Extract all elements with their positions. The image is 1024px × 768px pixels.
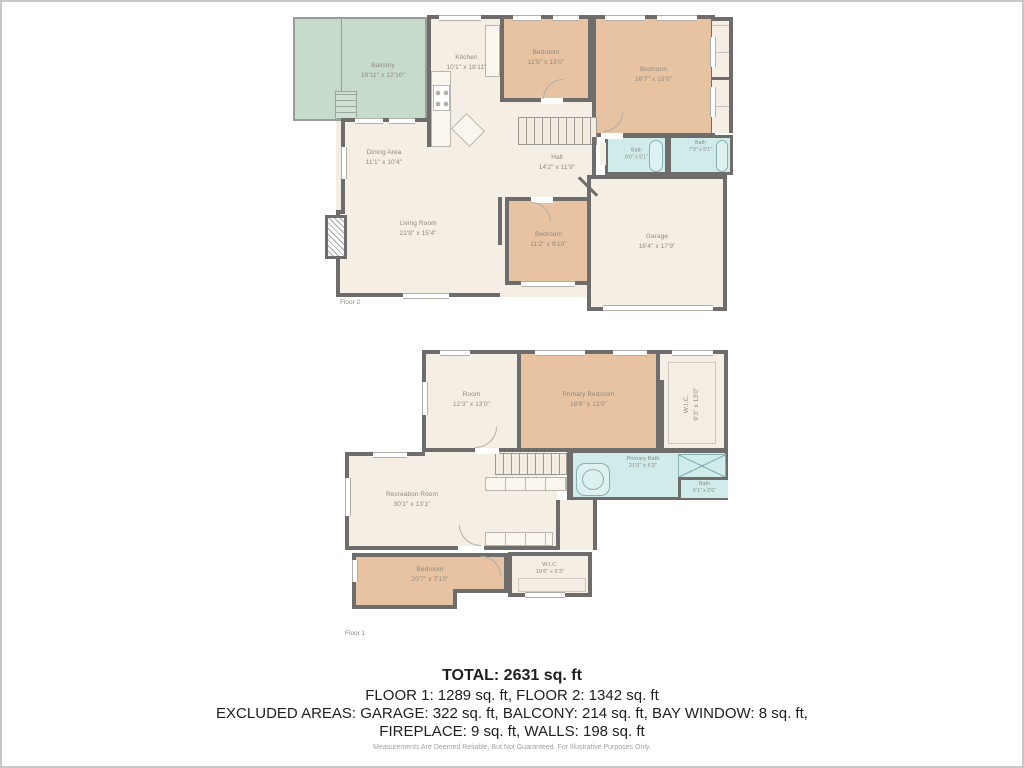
stove-icon — [433, 85, 450, 111]
room-name: Primary Bath — [583, 456, 703, 463]
room-room: Room 12'3" x 13'0" — [422, 350, 517, 452]
room-dims: 10'1" x 18'11" — [431, 63, 502, 73]
room-name: Bath — [671, 140, 730, 147]
room-wic-lower: W.I.C. 10'6" x 6'3" — [508, 552, 592, 597]
room-dims: 5'1" x 2'6" — [681, 488, 728, 495]
room-dims: 21'9" x 15'4" — [336, 229, 500, 239]
room-name: Living Room — [336, 219, 500, 229]
room-label: Bedroom 11'5" x 13'0" — [504, 47, 588, 67]
room-dims: 16'11" x 12'10" — [341, 71, 425, 81]
cabinet-row — [485, 477, 567, 491]
closet-opening — [710, 37, 716, 67]
window — [439, 15, 481, 21]
wall-segment — [593, 500, 597, 550]
room-name: Room — [426, 390, 517, 400]
excluded-areas-text: EXCLUDED AREAS: GARAGE: 322 sq. ft, BALC… — [0, 705, 1024, 722]
room-name: Primary Bedroom — [521, 390, 656, 400]
window — [355, 118, 383, 124]
floor-label: Floor 1 — [345, 630, 365, 637]
room-name: Balcony — [341, 61, 425, 71]
window — [389, 118, 415, 124]
room-label: W.I.C. 10'6" x 6'3" — [512, 562, 588, 577]
closet-shelves — [518, 578, 586, 592]
room-label: Primary Bath 21'0" x 6'2" — [583, 456, 703, 471]
window — [525, 592, 565, 598]
room-bedroom-lower-ext — [352, 593, 457, 609]
window — [373, 452, 407, 458]
room-bath-small: Bath 5'1" x 2'6" — [678, 477, 728, 498]
balcony-stairs — [335, 91, 357, 119]
floor-label: Floor 2 — [340, 299, 360, 306]
room-dims: 10'6" x 6'3" — [512, 569, 588, 576]
room-label: Balcony 16'11" x 12'10" — [341, 61, 425, 81]
room-balcony: Balcony 16'11" x 12'10" — [293, 17, 427, 121]
room-dims: 14'2" x 11'9" — [512, 163, 602, 173]
room-label: Recreation Room 30'1" x 13'1" — [345, 490, 479, 510]
window — [657, 15, 697, 21]
room-name: Bath — [608, 148, 665, 155]
room-bath-b: Bath 7'9" x 5'1" — [668, 135, 733, 175]
window — [672, 350, 713, 356]
room-name: W.I.C. — [682, 372, 692, 436]
room-label: Dining Area 11'1" x 10'4" — [341, 148, 427, 168]
room-label: Living Room 21'9" x 15'4" — [336, 219, 500, 239]
floor-areas-text: FLOOR 1: 1289 sq. ft, FLOOR 2: 1342 sq. … — [0, 687, 1024, 704]
garage-door — [603, 305, 713, 311]
room-label: W.I.C. 9'3" x 13'0" — [682, 372, 702, 436]
room-name: Kitchen — [431, 53, 502, 63]
floor-2-plan: Balcony 16'11" x 12'10" Kitchen 10'1" x … — [291, 15, 733, 315]
room-label: Bath 8'0" x 5'1" — [608, 148, 665, 162]
room-dims: 12'3" x 13'0" — [426, 400, 517, 410]
room-label: Garage 18'4" x 17'9" — [591, 232, 723, 252]
room-bath-a: Bath 8'0" x 5'1" — [605, 135, 668, 175]
window — [613, 350, 647, 356]
door-gap — [601, 133, 623, 139]
window — [403, 293, 449, 299]
total-area-text: TOTAL: 2631 sq. ft — [0, 667, 1024, 685]
wall-segment — [660, 380, 664, 452]
room-name: Hall — [512, 153, 602, 163]
disclaimer-text: Measurements Are Deemed Reliable, But No… — [0, 744, 1024, 751]
room-dims: 16'7" x 15'0" — [596, 75, 711, 85]
excluded-areas-text-2: FIREPLACE: 9 sq. ft, WALLS: 198 sq. ft — [0, 723, 1024, 740]
room-name: Bedroom — [509, 230, 588, 240]
room-name: Garage — [591, 232, 723, 242]
floorplan-page: Balcony 16'11" x 12'10" Kitchen 10'1" x … — [0, 0, 1024, 768]
room-label: Bedroom 16'7" x 15'0" — [596, 65, 711, 85]
wall-segment — [556, 500, 560, 550]
bay-window — [521, 281, 575, 287]
room-dims: 18'9" x 13'0" — [521, 400, 656, 410]
room-dims: 20'7" x 7'10" — [356, 575, 504, 585]
window — [440, 350, 470, 356]
room-label: Bedroom 11'2" x 9'10" — [509, 230, 588, 250]
room-label: Bath 7'9" x 5'1" — [671, 140, 730, 154]
cabinet-row — [485, 532, 553, 546]
room-label: Room 12'3" x 13'0" — [426, 390, 517, 410]
open-area — [557, 500, 593, 550]
wall-segment — [336, 210, 345, 214]
window — [535, 350, 585, 356]
room-dims: 30'1" x 13'1" — [345, 500, 479, 510]
room-name: Bedroom — [596, 65, 711, 75]
room-dims: 9'3" x 13'0" — [692, 372, 702, 436]
room-label: Primary Bedroom 18'9" x 13'0" — [521, 390, 656, 410]
window — [605, 15, 645, 21]
window — [553, 15, 579, 21]
floor-1-plan: Room 12'3" x 13'0" Primary Bedroom 18'9"… — [345, 348, 731, 644]
wall-segment — [453, 589, 508, 593]
room-name: Dining Area — [341, 148, 427, 158]
room-garage: Garage 18'4" x 17'9" — [587, 175, 727, 311]
window — [513, 15, 541, 21]
door-gap — [458, 546, 484, 552]
room-name: Bedroom — [356, 565, 504, 575]
staircase — [495, 453, 567, 475]
room-name: Bath — [681, 481, 728, 488]
closet-opening — [710, 87, 716, 117]
staircase — [518, 117, 597, 145]
room-dims: 18'4" x 17'9" — [591, 242, 723, 252]
room-wic-upper: W.I.C. 9'3" x 13'0" — [660, 350, 728, 452]
room-bedroom-c: Bedroom 11'2" x 9'10" — [505, 197, 592, 285]
door-gap — [475, 448, 499, 454]
room-dims: 11'2" x 9'10" — [509, 240, 588, 250]
closet-divider — [712, 77, 729, 80]
room-label: Hall 14'2" x 11'9" — [512, 153, 602, 173]
room-name: W.I.C. — [512, 562, 588, 569]
room-dims: 11'1" x 10'4" — [341, 158, 427, 168]
room-dims: 8'0" x 5'1" — [608, 154, 665, 161]
room-label: Kitchen 10'1" x 18'11" — [431, 53, 502, 73]
room-dims: 11'5" x 13'0" — [504, 57, 588, 67]
room-dims: 21'0" x 6'2" — [583, 463, 703, 470]
room-label: Bedroom 20'7" x 7'10" — [356, 565, 504, 585]
room-primary-bedroom: Primary Bedroom 18'9" x 13'0" — [517, 350, 660, 452]
room-name: Recreation Room — [345, 490, 479, 500]
open-area — [500, 102, 592, 118]
room-dims: 7'9" x 5'1" — [671, 147, 730, 154]
room-name: Bedroom — [504, 47, 588, 57]
room-label: Bath 5'1" x 2'6" — [681, 481, 728, 495]
